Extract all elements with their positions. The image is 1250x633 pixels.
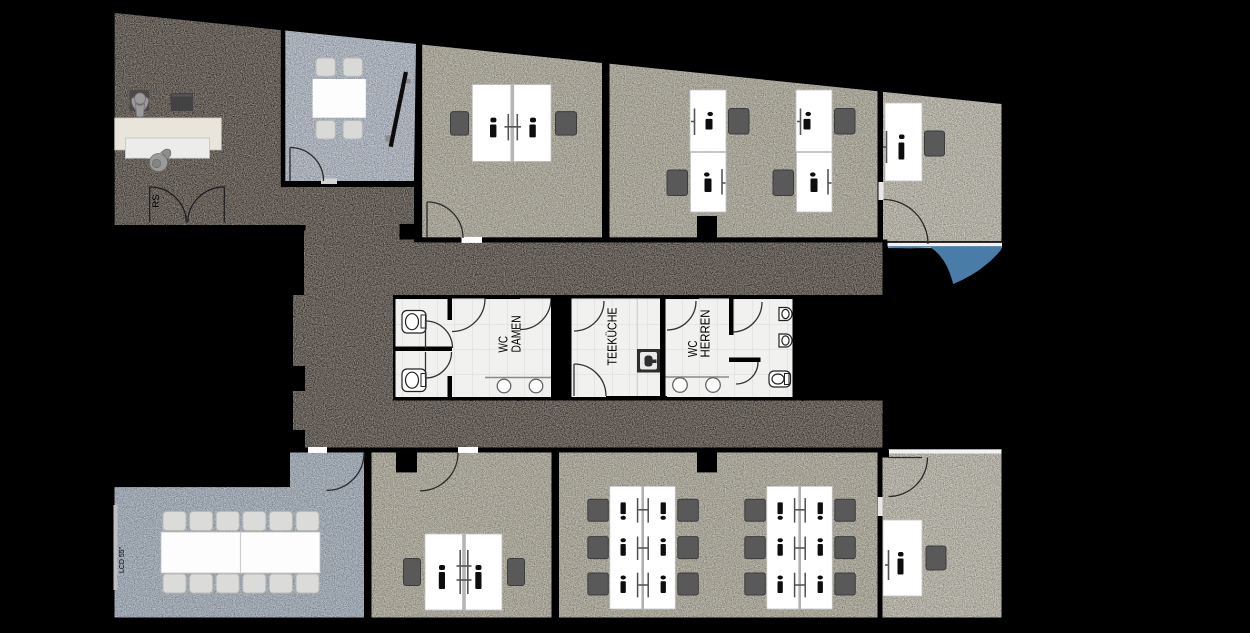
svg-text:DAMEN: DAMEN <box>509 316 524 353</box>
svg-text:LCD 55": LCD 55" <box>119 546 126 573</box>
svg-text:RS: RS <box>151 194 162 207</box>
svg-text:HERREN: HERREN <box>698 310 713 358</box>
svg-text:TEEKÜCHE: TEEKÜCHE <box>605 307 620 365</box>
